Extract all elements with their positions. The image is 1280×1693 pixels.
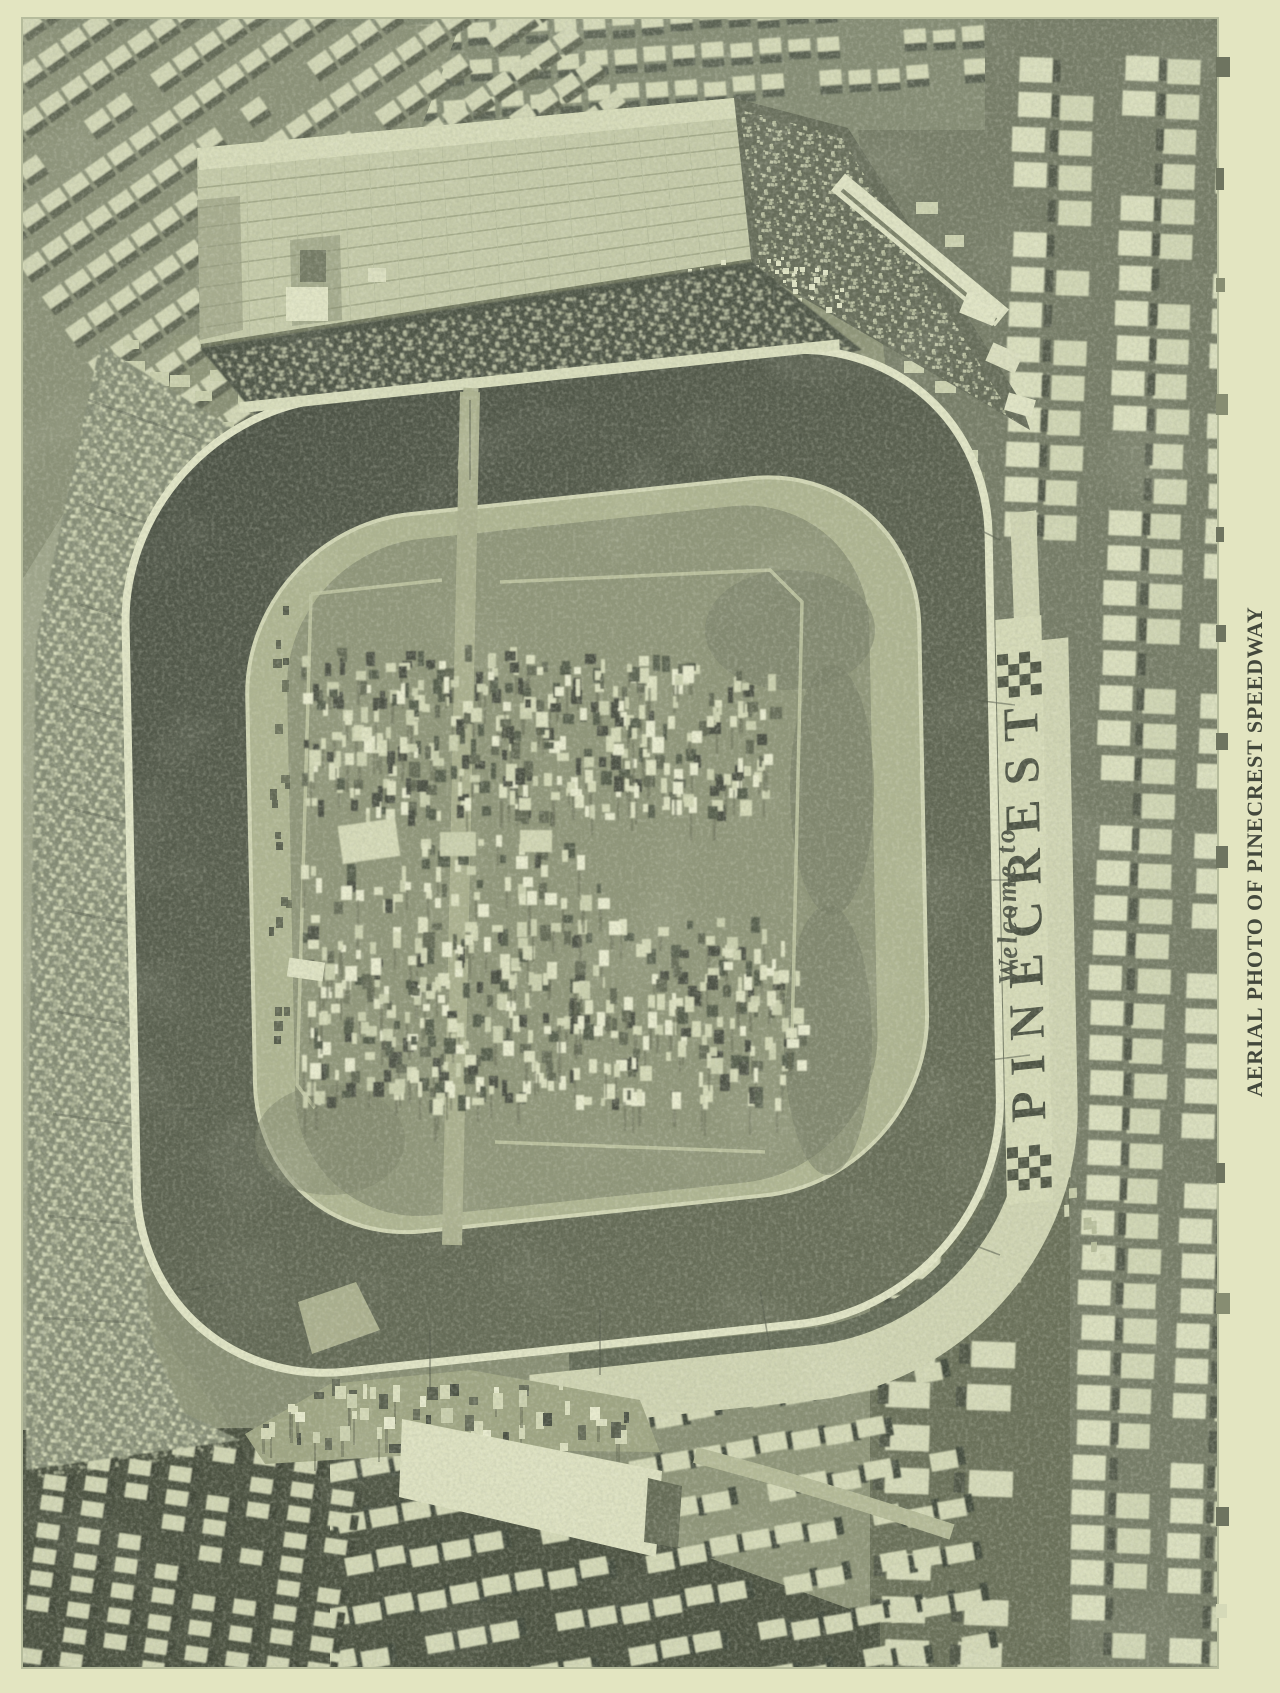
svg-text:AERIAL PHOTO OF PINECREST SPEE: AERIAL PHOTO OF PINECREST SPEEDWAY [1242, 606, 1267, 1097]
